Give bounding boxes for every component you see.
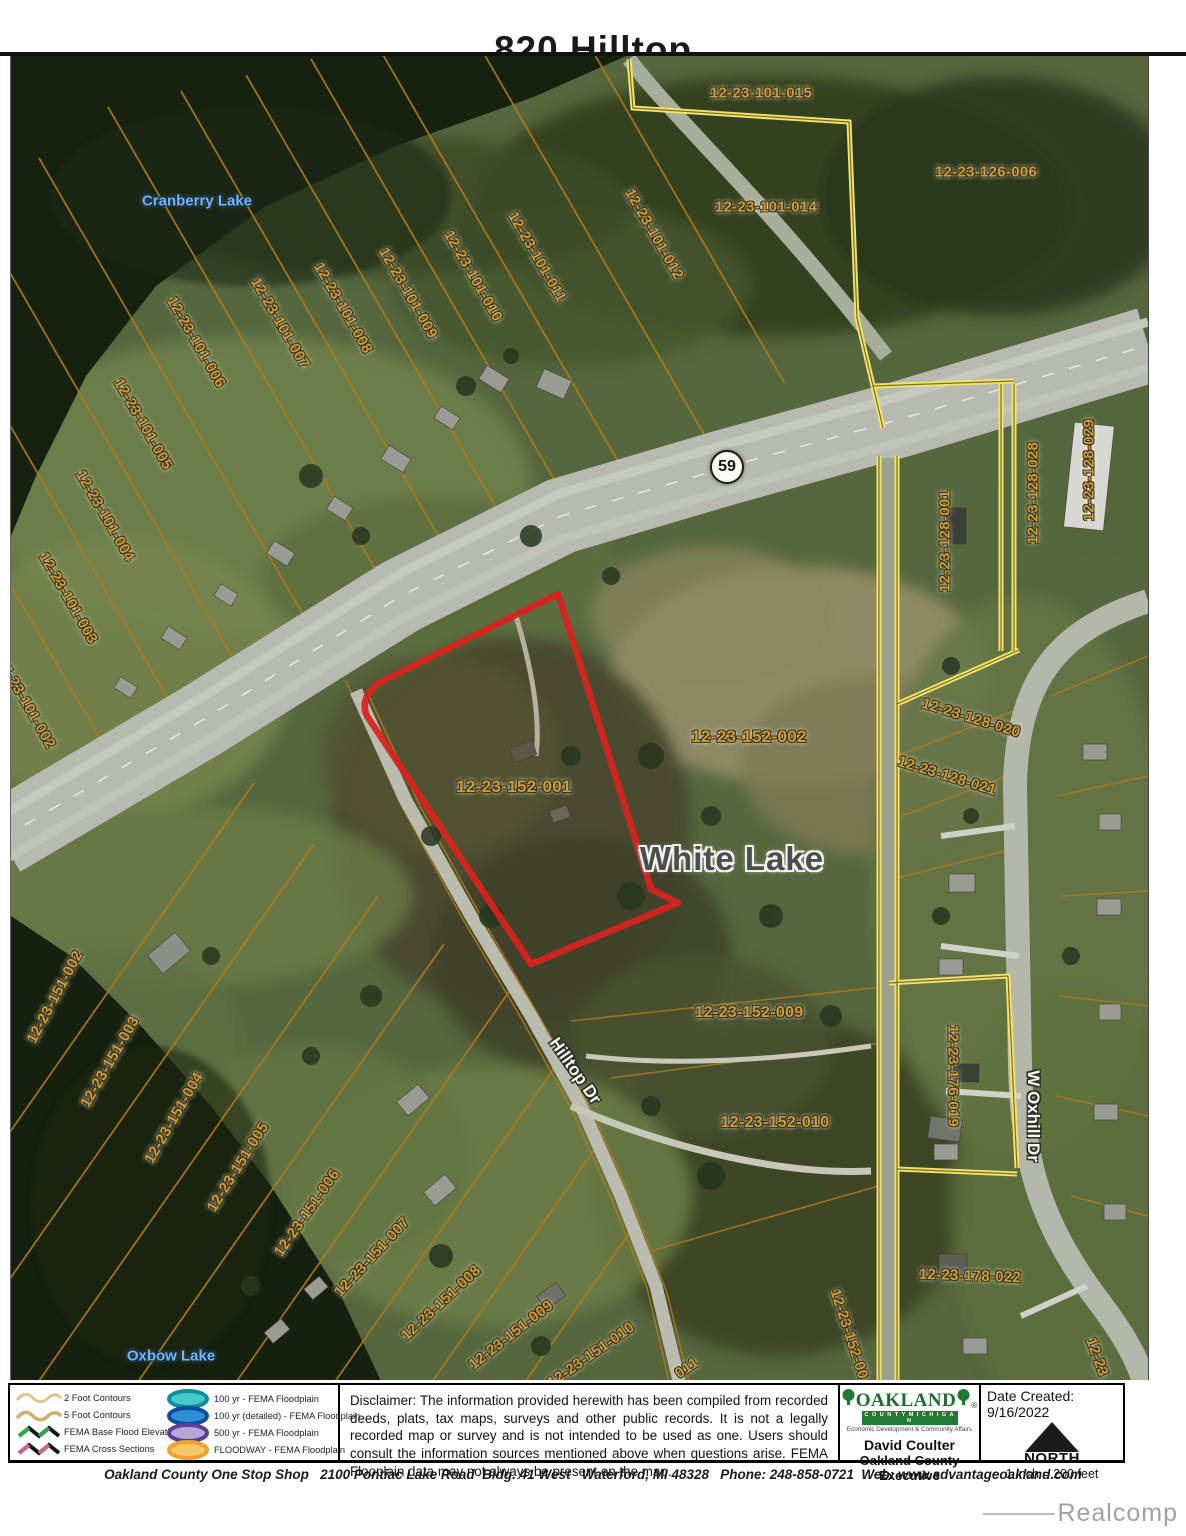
legend-item-label: 5 Foot Contours bbox=[64, 1410, 131, 1420]
zigzag-green-swatch-icon bbox=[16, 1424, 64, 1440]
parcel-label: 12-23-152-002 bbox=[691, 727, 806, 747]
legend-item: 5 Foot Contours bbox=[16, 1407, 166, 1424]
parcel-label: 12-23-152-010 bbox=[721, 1114, 830, 1132]
legend-column-left: 2 Foot Contours5 Foot ContoursFEMA Base … bbox=[16, 1390, 166, 1457]
contour-5ft-swatch-icon bbox=[16, 1407, 64, 1423]
legend-column-right: 100 yr - FEMA Floodplain100 yr (detailed… bbox=[166, 1390, 360, 1457]
oakland-logo-name: OAKLAND bbox=[856, 1391, 957, 1410]
parcel-label: 12-23-178-022 bbox=[919, 1266, 1022, 1287]
lake-label: Cranberry Lake bbox=[142, 193, 252, 210]
legend-item: 500 yr - FEMA Floodplain bbox=[166, 1424, 360, 1441]
zigzag-pink-swatch-icon bbox=[16, 1441, 64, 1457]
parcel-label: 12-23-101-014 bbox=[715, 199, 817, 216]
legend-item: 2 Foot Contours bbox=[16, 1390, 166, 1407]
parcel-label: 12-23-152-009 bbox=[695, 1004, 804, 1022]
place-label: White Lake bbox=[640, 840, 824, 878]
legend-item-label: 2 Foot Contours bbox=[64, 1393, 131, 1403]
parcel-label: 12-23-128-028 bbox=[1025, 442, 1042, 544]
date-created: Date Created: 9/16/2022 bbox=[981, 1388, 1123, 1420]
north-label: NORTH bbox=[981, 1450, 1123, 1467]
legend-item: FEMA Base Flood Elevations bbox=[16, 1424, 166, 1441]
registered-trademark: ® bbox=[971, 1402, 977, 1410]
north-arrow-icon bbox=[1025, 1422, 1079, 1452]
oakland-county-panel: OAKLAND ® C O U N T Y M I C H I G A N Ec… bbox=[838, 1385, 979, 1460]
legend: 2 Foot Contours5 Foot ContoursFEMA Base … bbox=[10, 1385, 338, 1460]
legend-item-label: FEMA Cross Sections bbox=[64, 1444, 154, 1454]
watermark-line bbox=[983, 1513, 1055, 1515]
parcel-label: 12-23-101-015 bbox=[710, 85, 812, 102]
tree-icon bbox=[957, 1389, 970, 1410]
legend-item: FEMA Cross Sections bbox=[16, 1440, 166, 1457]
legend-item: 100 yr (detailed) - FEMA Floodplain bbox=[166, 1407, 360, 1424]
watermark-text: Realcomp bbox=[1057, 1499, 1178, 1528]
legend-item-label: 500 yr - FEMA Floodplain bbox=[214, 1428, 319, 1438]
page: { "title": "820 Hilltop", "watermark": "… bbox=[0, 0, 1186, 1536]
parcel-label: 12-23-126-006 bbox=[935, 164, 1037, 181]
route-59-shield: 59 bbox=[710, 450, 744, 484]
bottom-info-strip: 2 Foot Contours5 Foot ContoursFEMA Base … bbox=[8, 1383, 1125, 1463]
parcel-map-viewport: 12-23-101-01512-23-101-01412-23-126-0061… bbox=[10, 56, 1149, 1380]
legend-item-label: 100 yr - FEMA Floodplain bbox=[214, 1394, 319, 1404]
footer-contact-line: Oakland County One Stop Shop 2100 Pontia… bbox=[0, 1467, 1186, 1482]
road-label: W Oxhill Dr bbox=[1023, 1070, 1043, 1162]
contour-2ft-swatch-icon bbox=[16, 1390, 64, 1406]
ellipse-orange-swatch-icon bbox=[166, 1440, 214, 1460]
tree-icon bbox=[842, 1389, 855, 1410]
legend-item: FLOODWAY - FEMA Floodplain bbox=[166, 1441, 360, 1458]
disclaimer-panel: Disclaimer: The information provided her… bbox=[338, 1385, 838, 1460]
realcomp-watermark: Realcomp bbox=[983, 1499, 1178, 1528]
parcel-label: 12-23-128-029 bbox=[1081, 419, 1098, 521]
oakland-logo-tagline: Economic Development & Community Affairs bbox=[840, 1426, 979, 1433]
lake-label: Oxbow Lake bbox=[127, 1348, 215, 1365]
legend-item: 100 yr - FEMA Floodplain bbox=[166, 1390, 360, 1407]
parcel-label: 12-23-128-001 bbox=[937, 490, 954, 592]
parcel-label: 12-23-176-019 bbox=[945, 1025, 962, 1127]
parcel-label: 12-23-152-001 bbox=[456, 777, 571, 797]
oakland-logo-band: C O U N T Y M I C H I G A N bbox=[862, 1411, 958, 1425]
legend-item-label: FLOODWAY - FEMA Floodplain bbox=[214, 1445, 345, 1455]
oakland-logo: OAKLAND ® bbox=[840, 1389, 979, 1410]
executive-name: David Coulter bbox=[840, 1437, 979, 1453]
map-info-panel: Date Created: 9/16/2022 NORTH 1 inch = 2… bbox=[979, 1385, 1123, 1460]
